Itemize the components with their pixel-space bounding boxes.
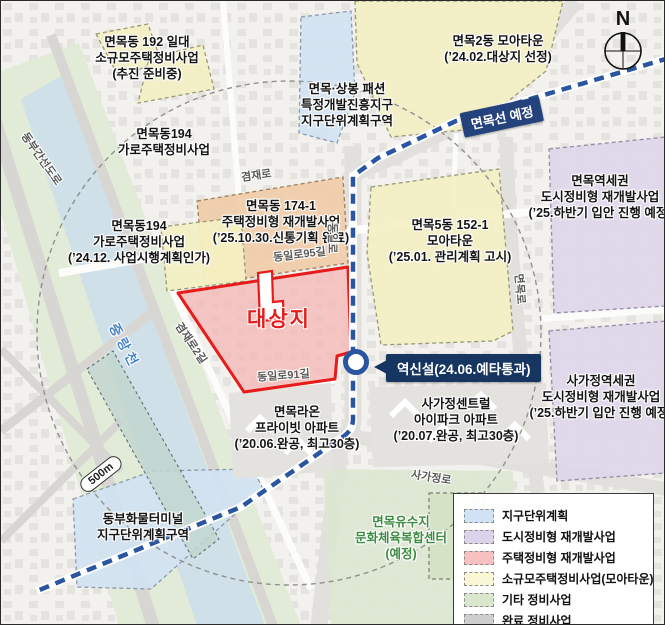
compass-n-label: N bbox=[595, 9, 651, 29]
label-m5dong-zone: 면목5동 152-1모아타운(’25.01. 관리계획 고시) bbox=[389, 217, 512, 265]
legend-label: 지구단위계획 bbox=[502, 507, 568, 524]
legend-item: 기타 정비사업 bbox=[464, 591, 645, 608]
legend: 지구단위계획 도시정비형 재개발사업 주택정비형 재개발사업 소규모주택정비사업… bbox=[453, 493, 654, 625]
label-m194a-zone: 면목동194가로주택정비사업 bbox=[118, 126, 210, 158]
compass: N bbox=[595, 9, 651, 85]
label-terminal-zone: 동부화물터미널지구단위계획구역 bbox=[97, 511, 189, 543]
legend-swatch-urban-redevelopment bbox=[464, 530, 494, 544]
label-m192-zone: 면목동 192 일대소규모주택정비사업(추진 준비중) bbox=[95, 34, 199, 82]
target-site-label: 대상지 bbox=[247, 303, 311, 333]
legend-label: 완료 정비사업 bbox=[502, 612, 572, 625]
legend-label: 주택정비형 재개발사업 bbox=[502, 549, 616, 566]
road-label-dongil: 동일로 bbox=[325, 223, 341, 253]
label-ipark-apartment: 사가정센트럴아이파크 아파트(’20.07.완공, 최고30층) bbox=[394, 396, 519, 444]
label-m2dong-zone: 면목2동 모아타운(’24.02.대상지 선정) bbox=[444, 33, 552, 65]
zone-myeonmok-station-area bbox=[549, 137, 665, 313]
new-station-badge: 역신설(24.06.예타통과) bbox=[386, 354, 541, 382]
label-m194b-zone: 면목동194가로주택정비사업(’24.12. 사업시행계획인가) bbox=[68, 218, 210, 266]
label-sagajeong-station-zone: 사가정역세권도시정비형 재개발사업(’25.하반기 입안 진행 예정) bbox=[529, 373, 665, 421]
legend-swatch-completed-projects bbox=[464, 614, 494, 625]
legend-item: 소규모주택정비사업(모아타운) bbox=[464, 570, 645, 587]
label-myeonmok-station-zone: 면목역세권도시정비형 재개발사업(’25.하반기 입안 진행 예정) bbox=[528, 173, 665, 221]
label-raon-apartment: 면목라온프라이빗 아파트(’20.06.완공, 최고30층) bbox=[235, 404, 360, 452]
label-yusuji-center: 면목유수지문화체육복합센터(예정) bbox=[355, 514, 447, 562]
legend-item: 완료 정비사업 bbox=[464, 612, 645, 625]
label-fashion-zone: 면목·상봉 패션특정개발진흥지구지구단위계획구역 bbox=[301, 81, 393, 129]
legend-swatch-district-unit-plan bbox=[464, 509, 494, 523]
legend-swatch-other-projects bbox=[464, 593, 494, 607]
legend-item: 주택정비형 재개발사업 bbox=[464, 549, 645, 566]
map-container: 면목동 192 일대소규모주택정비사업(추진 준비중) 면목동194가로주택정비… bbox=[0, 0, 665, 625]
legend-swatch-housing-redevelopment bbox=[464, 551, 494, 565]
legend-swatch-small-housing-moatown bbox=[464, 572, 494, 586]
legend-label: 도시정비형 재개발사업 bbox=[502, 528, 616, 545]
legend-label: 기타 정비사업 bbox=[502, 591, 572, 608]
new-station-marker bbox=[346, 352, 367, 373]
road-label-myeonmok: 면목로 bbox=[511, 273, 530, 305]
legend-item: 지구단위계획 bbox=[464, 507, 645, 524]
legend-label: 소규모주택정비사업(모아타운) bbox=[502, 570, 654, 587]
legend-item: 도시정비형 재개발사업 bbox=[464, 528, 645, 545]
compass-rose-icon bbox=[601, 29, 645, 73]
